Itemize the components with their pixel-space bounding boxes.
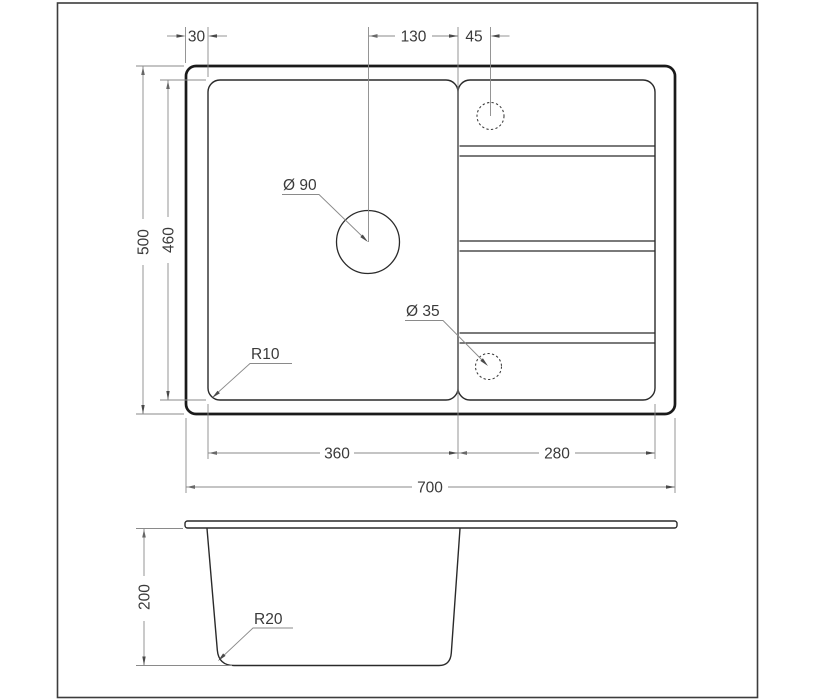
arrowhead: [646, 451, 655, 454]
arrowhead: [177, 34, 186, 37]
arrowhead: [449, 451, 458, 454]
arrowhead: [666, 485, 675, 488]
dim-rim-offset: 30: [188, 29, 206, 46]
dim-overall-width: 700: [417, 480, 443, 497]
leader-line: [214, 364, 292, 397]
dim-drain-to-divider: 130: [401, 29, 427, 46]
leader-line: [282, 195, 366, 241]
label-tap-hole: Ø 35: [406, 303, 440, 320]
dim-overall-depth: 500: [136, 229, 153, 255]
left-dimensions: 500 460: [136, 66, 207, 414]
rim-plate-section: [185, 521, 677, 528]
bowl-section-profile: [207, 529, 460, 666]
arrowhead: [141, 405, 144, 414]
sheet-border: [58, 3, 758, 698]
label-drain-hole: Ø 90: [283, 177, 317, 194]
label-corner-radius: R10: [251, 346, 280, 363]
bottom-dimensions: 360 280 700: [186, 404, 675, 497]
arrowhead: [142, 657, 145, 666]
arrowhead: [491, 34, 500, 37]
arrowhead: [449, 34, 458, 37]
dim-bowl-width: 360: [324, 446, 350, 463]
drainboard-grooves: [460, 146, 655, 343]
dim-drainboard-width: 280: [544, 446, 570, 463]
label-bottom-radius: R20: [254, 611, 283, 628]
leader-labels: Ø 90 Ø 35 R10: [212, 177, 488, 398]
sink-technical-drawing: 30 130 45 500 460 Ø 90 Ø 35: [0, 0, 816, 700]
drainboard-edge: [458, 80, 655, 400]
dim-inner-depth: 460: [161, 227, 178, 253]
dim-bowl-depth: 200: [137, 584, 154, 610]
leader-line: [405, 321, 486, 365]
bowl-inner-edge: [208, 80, 458, 400]
dim-divider-to-tap: 45: [465, 29, 482, 46]
arrowhead: [166, 391, 169, 400]
arrowhead: [208, 34, 217, 37]
section-view: 200 R20: [136, 521, 677, 666]
leader-line: [220, 628, 293, 659]
